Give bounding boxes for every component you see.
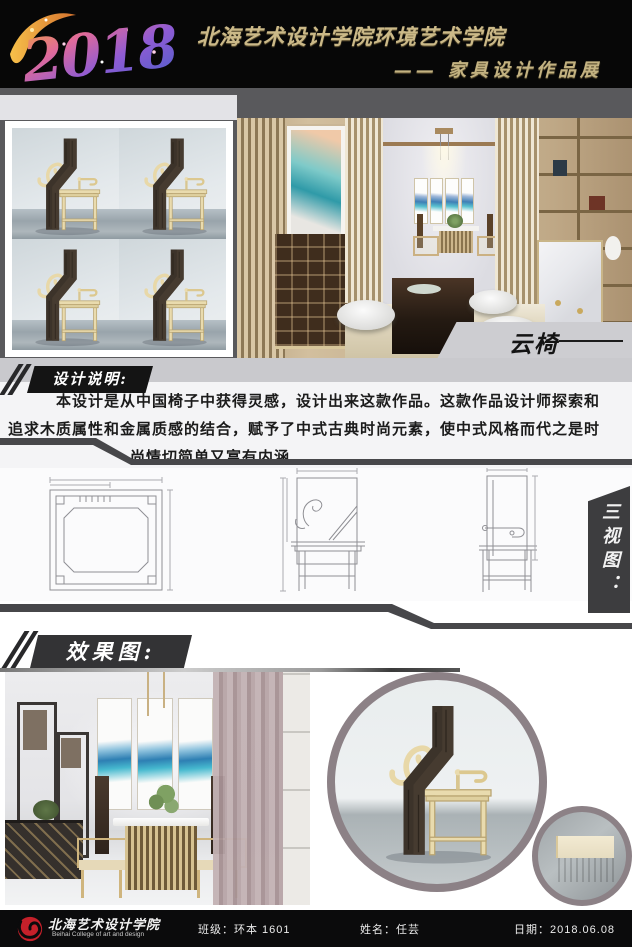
shelf-vase xyxy=(605,236,621,260)
chair-detail-circle xyxy=(327,672,547,892)
shelf-books xyxy=(553,160,567,176)
table-flowers xyxy=(143,780,181,820)
side-view-drawing xyxy=(479,468,538,592)
year-2018-logo: 2018 xyxy=(6,0,184,88)
footer-date-field: 日期：2018.06.08 xyxy=(514,921,615,937)
shelf-books xyxy=(589,196,605,210)
chair-name-tab: 云椅 xyxy=(437,322,632,359)
poster-root: 2018 北海艺术设计学院环境艺术学院 —— 家具设计作品展 xyxy=(0,0,632,947)
poster-footer: 北海艺术设计学院 Beihai College of art and desig… xyxy=(0,910,632,947)
gallery-top-strip xyxy=(0,95,237,120)
dining-table-base xyxy=(125,826,197,890)
floor-cushion xyxy=(469,290,517,314)
front-view-drawing xyxy=(280,468,365,591)
chair-render-image xyxy=(119,239,226,350)
pendant-rod xyxy=(147,672,149,716)
cabinet-handle xyxy=(555,300,561,306)
pendant-rod xyxy=(163,672,165,708)
exhibition-subtitle: —— 家具设计作品展 xyxy=(340,56,602,82)
school-logo-icon xyxy=(16,915,44,943)
footer-school-name-en: Beihai College of art and design xyxy=(52,931,144,938)
top-view-drawing xyxy=(50,477,173,590)
design-notes-line-1: 本设计是从中国椅子中获得灵感，设计出来这款作品。这款作品设计师探索和 xyxy=(56,390,600,411)
white-cabinet xyxy=(283,672,310,905)
design-notes-heading: 设计说明: xyxy=(27,366,153,393)
three-views-banner: 三视图： xyxy=(588,486,630,613)
render-heading-box: 效果图: xyxy=(30,635,192,668)
interior-dining-chair xyxy=(413,236,439,256)
wood-material-swatch xyxy=(558,858,616,882)
tea-tray xyxy=(407,284,441,294)
bonsai-plant xyxy=(33,800,59,820)
chair-renders-panel xyxy=(5,121,233,357)
dining-room-render xyxy=(5,672,310,905)
interior-slat-screen-left xyxy=(345,118,383,303)
design-notes-heading-box: 设计说明: xyxy=(27,366,153,393)
chair-render-image xyxy=(12,128,119,239)
material-swatch-circle xyxy=(532,806,632,906)
chair-render-image xyxy=(119,128,226,239)
dining-chair-left xyxy=(71,776,133,898)
curtain xyxy=(213,672,285,905)
interior-flowers xyxy=(447,214,463,228)
lamp-shade xyxy=(23,710,47,750)
interior-marble-cabinet xyxy=(537,240,603,330)
step-divider-top xyxy=(0,436,632,468)
poster-header: 2018 北海艺术设计学院环境艺术学院 —— 家具设计作品展 xyxy=(0,0,632,88)
chair-render-image xyxy=(12,239,119,350)
cabinet-handle xyxy=(577,308,583,314)
footer-class-field: 班级：环本 1601 xyxy=(198,921,291,937)
label-dash-line xyxy=(559,340,623,342)
chair-name-label: 云椅 xyxy=(509,325,559,359)
interior-art-panels xyxy=(414,178,474,224)
orthographic-drawings xyxy=(25,468,580,604)
interior-table-base xyxy=(439,231,473,253)
floor-cushion xyxy=(337,300,395,330)
step-divider-bottom xyxy=(0,601,632,633)
footer-name-field: 姓名：任芸 xyxy=(360,921,420,937)
interior-pendant-lamp xyxy=(435,128,453,134)
school-title: 北海艺术设计学院环境艺术学院 xyxy=(197,21,505,51)
three-views-heading: 三视图： xyxy=(596,502,622,598)
interior-slat-screen-right xyxy=(495,118,539,306)
lamp-shade xyxy=(61,738,81,768)
cream-material-swatch xyxy=(556,836,614,858)
render-section-heading: 效果图: xyxy=(30,635,192,668)
interior-left-painting xyxy=(285,124,347,240)
